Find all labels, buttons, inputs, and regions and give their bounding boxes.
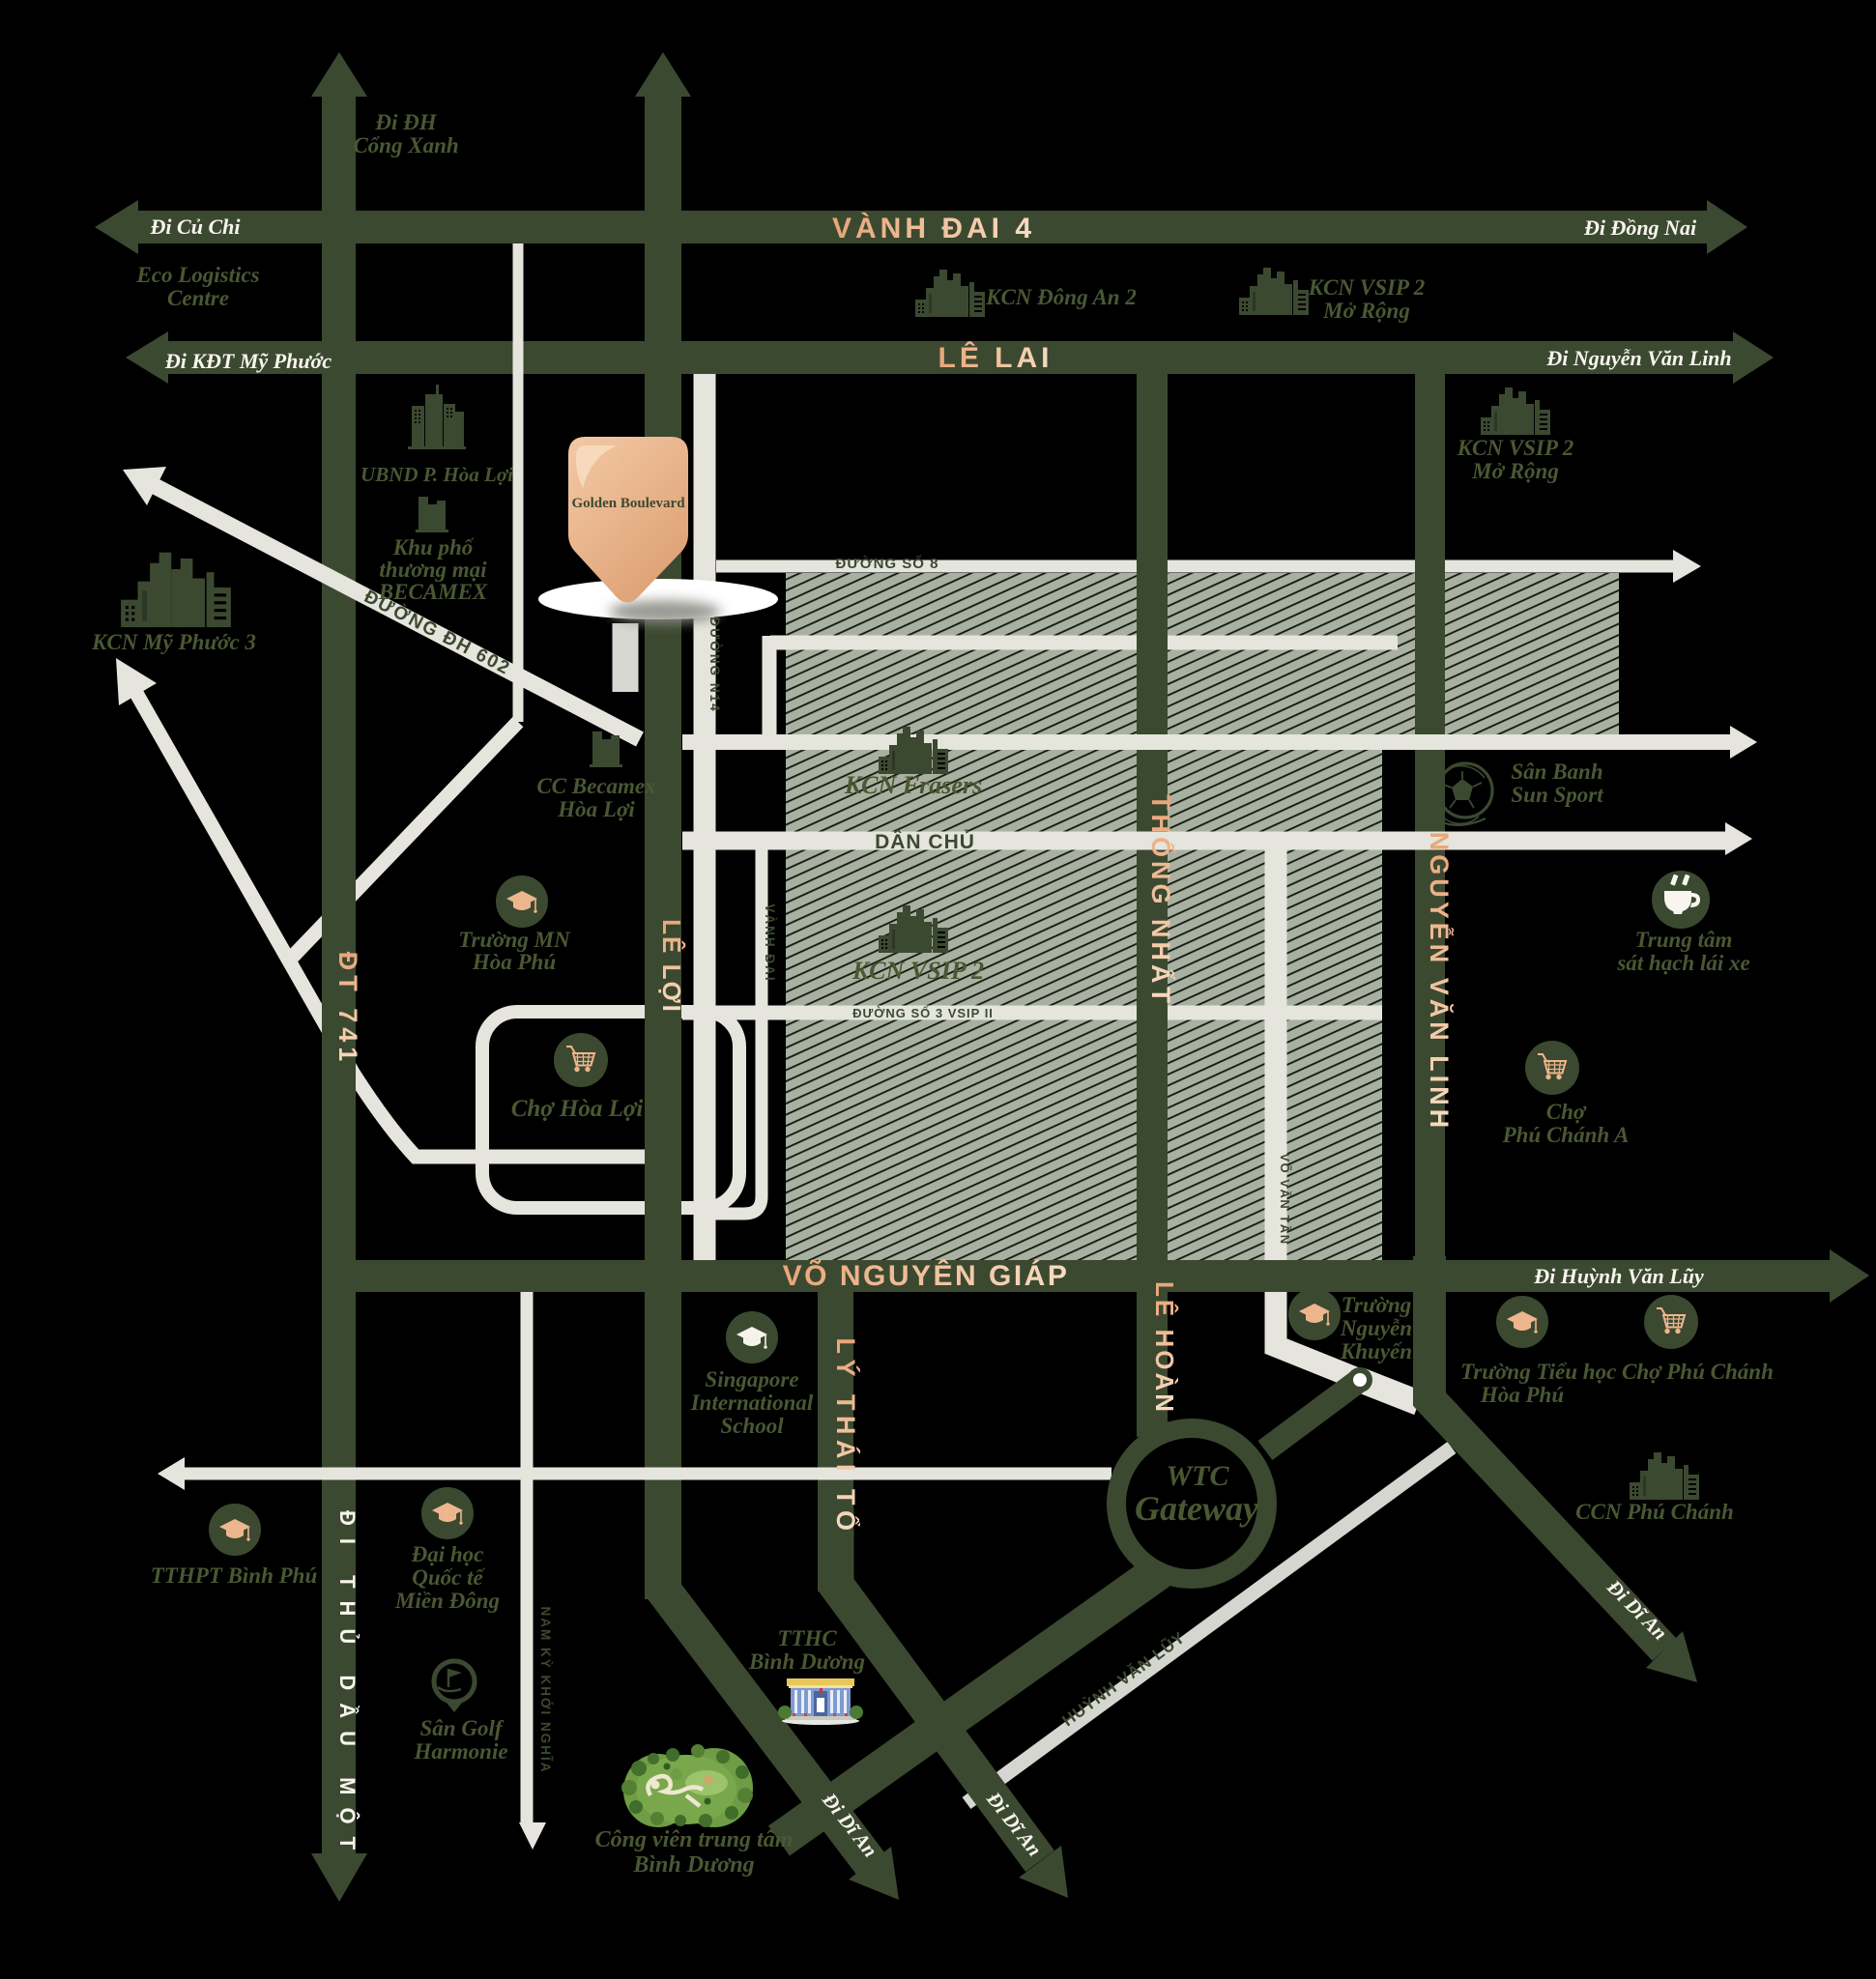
svg-text:NAM KỲ KHỞI NGHĨA: NAM KỲ KHỞI NGHĨA (538, 1606, 553, 1773)
svg-text:Đi KĐT Mỹ Phước: Đi KĐT Mỹ Phước (164, 349, 332, 373)
svg-text:VÀNH ĐAI 4: VÀNH ĐAI 4 (832, 212, 1035, 244)
svg-text:Đi Nguyễn Văn Linh: Đi Nguyễn Văn Linh (1545, 346, 1731, 370)
svg-text:CC Becamex: CC Becamex (536, 774, 655, 798)
svg-text:Hòa Phú: Hòa Phú (472, 950, 556, 974)
svg-text:sát hạch lái xe: sát hạch lái xe (1616, 951, 1749, 975)
svg-text:TTHC: TTHC (777, 1626, 837, 1650)
svg-text:CCN Phú Chánh: CCN Phú Chánh (1575, 1500, 1734, 1524)
svg-text:KCN VSIP 2: KCN VSIP 2 (851, 957, 984, 985)
svg-text:LÊ LỢI: LÊ LỢI (657, 919, 686, 1014)
svg-text:DÂN CHỦ: DÂN CHỦ (875, 830, 975, 853)
svg-text:Đi Huỳnh Văn Lũy: Đi Huỳnh Văn Lũy (1533, 1264, 1704, 1288)
svg-text:Quốc tế: Quốc tế (412, 1565, 485, 1590)
svg-text:Đại học: Đại học (411, 1542, 484, 1566)
svg-text:Trường Tiểu học Chợ Phú Chánh: Trường Tiểu học Chợ Phú Chánh (1460, 1360, 1774, 1384)
svg-text:Hòa Phú: Hòa Phú (1480, 1383, 1564, 1407)
svg-text:WTC: WTC (1166, 1460, 1229, 1492)
svg-text:Công viên trung tâm: Công viên trung tâm (595, 1827, 794, 1852)
svg-text:KCN VSIP 2: KCN VSIP 2 (1457, 436, 1574, 460)
svg-text:ĐI THỦ DẦU MỘT: ĐI THỦ DẦU MỘT (335, 1510, 360, 1862)
svg-text:KCN VSIP 2: KCN VSIP 2 (1308, 275, 1426, 300)
svg-text:Khu phố: Khu phố (392, 535, 475, 559)
svg-text:Sun Sport: Sun Sport (1511, 783, 1603, 807)
svg-text:TTHPT Bình Phú: TTHPT Bình Phú (151, 1563, 318, 1588)
svg-text:VÕ NGUYÊN GIÁP: VÕ NGUYÊN GIÁP (783, 1259, 1070, 1292)
svg-text:Centre: Centre (167, 286, 229, 310)
svg-text:KCN Mỹ Phước 3: KCN Mỹ Phước 3 (91, 630, 256, 654)
svg-text:School: School (720, 1414, 784, 1438)
svg-text:ĐƯỜNG SỐ 3 VSIP II: ĐƯỜNG SỐ 3 VSIP II (852, 1006, 994, 1020)
svg-text:Sân Banh: Sân Banh (1511, 760, 1602, 784)
svg-text:KCN Frasers: KCN Frasers (844, 771, 982, 799)
svg-text:NGUYỄN VĂN LINH: NGUYỄN VĂN LINH (1425, 832, 1455, 1133)
svg-text:BECAMEX: BECAMEX (378, 580, 488, 604)
svg-text:Đi Đồng Nai: Đi Đồng Nai (1583, 215, 1697, 240)
svg-text:Đi Củ Chi: Đi Củ Chi (150, 215, 242, 239)
svg-text:Gateway: Gateway (1135, 1489, 1259, 1528)
svg-text:Sân Golf: Sân Golf (420, 1716, 505, 1740)
svg-text:UBND P. Hòa Lợi: UBND P. Hòa Lợi (361, 463, 513, 486)
svg-text:Harmonie: Harmonie (413, 1739, 507, 1764)
svg-text:KCN Đông An 2: KCN Đông An 2 (985, 285, 1137, 309)
svg-text:Mở Rộng: Mở Rộng (1471, 459, 1559, 483)
svg-text:LÊ HOÀN: LÊ HOÀN (1150, 1281, 1179, 1415)
svg-text:ĐƯỜNG N14: ĐƯỜNG N14 (707, 617, 722, 712)
svg-text:VÕ VĂN TẦN: VÕ VĂN TẦN (1278, 1153, 1292, 1245)
svg-text:Chợ Hòa Lợi: Chợ Hòa Lợi (511, 1096, 644, 1122)
svg-text:Đi ĐH: Đi ĐH (374, 110, 437, 134)
svg-text:Singapore: Singapore (705, 1367, 798, 1391)
svg-text:VÀNH ĐAI: VÀNH ĐAI (763, 903, 777, 982)
svg-text:ĐT 741: ĐT 741 (333, 952, 362, 1067)
svg-text:Trường MN: Trường MN (458, 928, 571, 952)
svg-text:Miền Đông: Miền Đông (394, 1589, 500, 1613)
svg-text:THỐNG NHẤT: THỐNG NHẤT (1146, 794, 1177, 1007)
svg-text:Phú Chánh A: Phú Chánh A (1502, 1123, 1630, 1147)
svg-text:Trung tâm: Trung tâm (1635, 928, 1733, 952)
svg-text:Mở Rộng: Mở Rộng (1322, 299, 1410, 323)
svg-text:Hòa Lợi: Hòa Lợi (557, 797, 635, 821)
svg-text:Bình Dương: Bình Dương (748, 1649, 865, 1674)
svg-text:Golden Boulevard: Golden Boulevard (571, 496, 685, 511)
svg-text:ĐƯỜNG SỐ 8: ĐƯỜNG SỐ 8 (836, 555, 939, 572)
svg-text:LÝ THÁI TỔ: LÝ THÁI TỔ (831, 1338, 861, 1536)
svg-text:Bình Dương: Bình Dương (632, 1852, 754, 1878)
svg-text:Khuyến: Khuyến (1340, 1339, 1412, 1363)
svg-text:Chợ: Chợ (1546, 1100, 1587, 1124)
svg-text:Nguyễn: Nguyễn (1340, 1316, 1412, 1340)
svg-text:International: International (690, 1391, 814, 1415)
svg-text:Trường: Trường (1342, 1293, 1412, 1317)
svg-text:Eco Logistics: Eco Logistics (135, 263, 259, 287)
svg-text:LÊ LAI: LÊ LAI (938, 341, 1053, 374)
svg-text:Cổng Xanh: Cổng Xanh (353, 133, 458, 158)
svg-text:thương mại: thương mại (379, 558, 487, 582)
